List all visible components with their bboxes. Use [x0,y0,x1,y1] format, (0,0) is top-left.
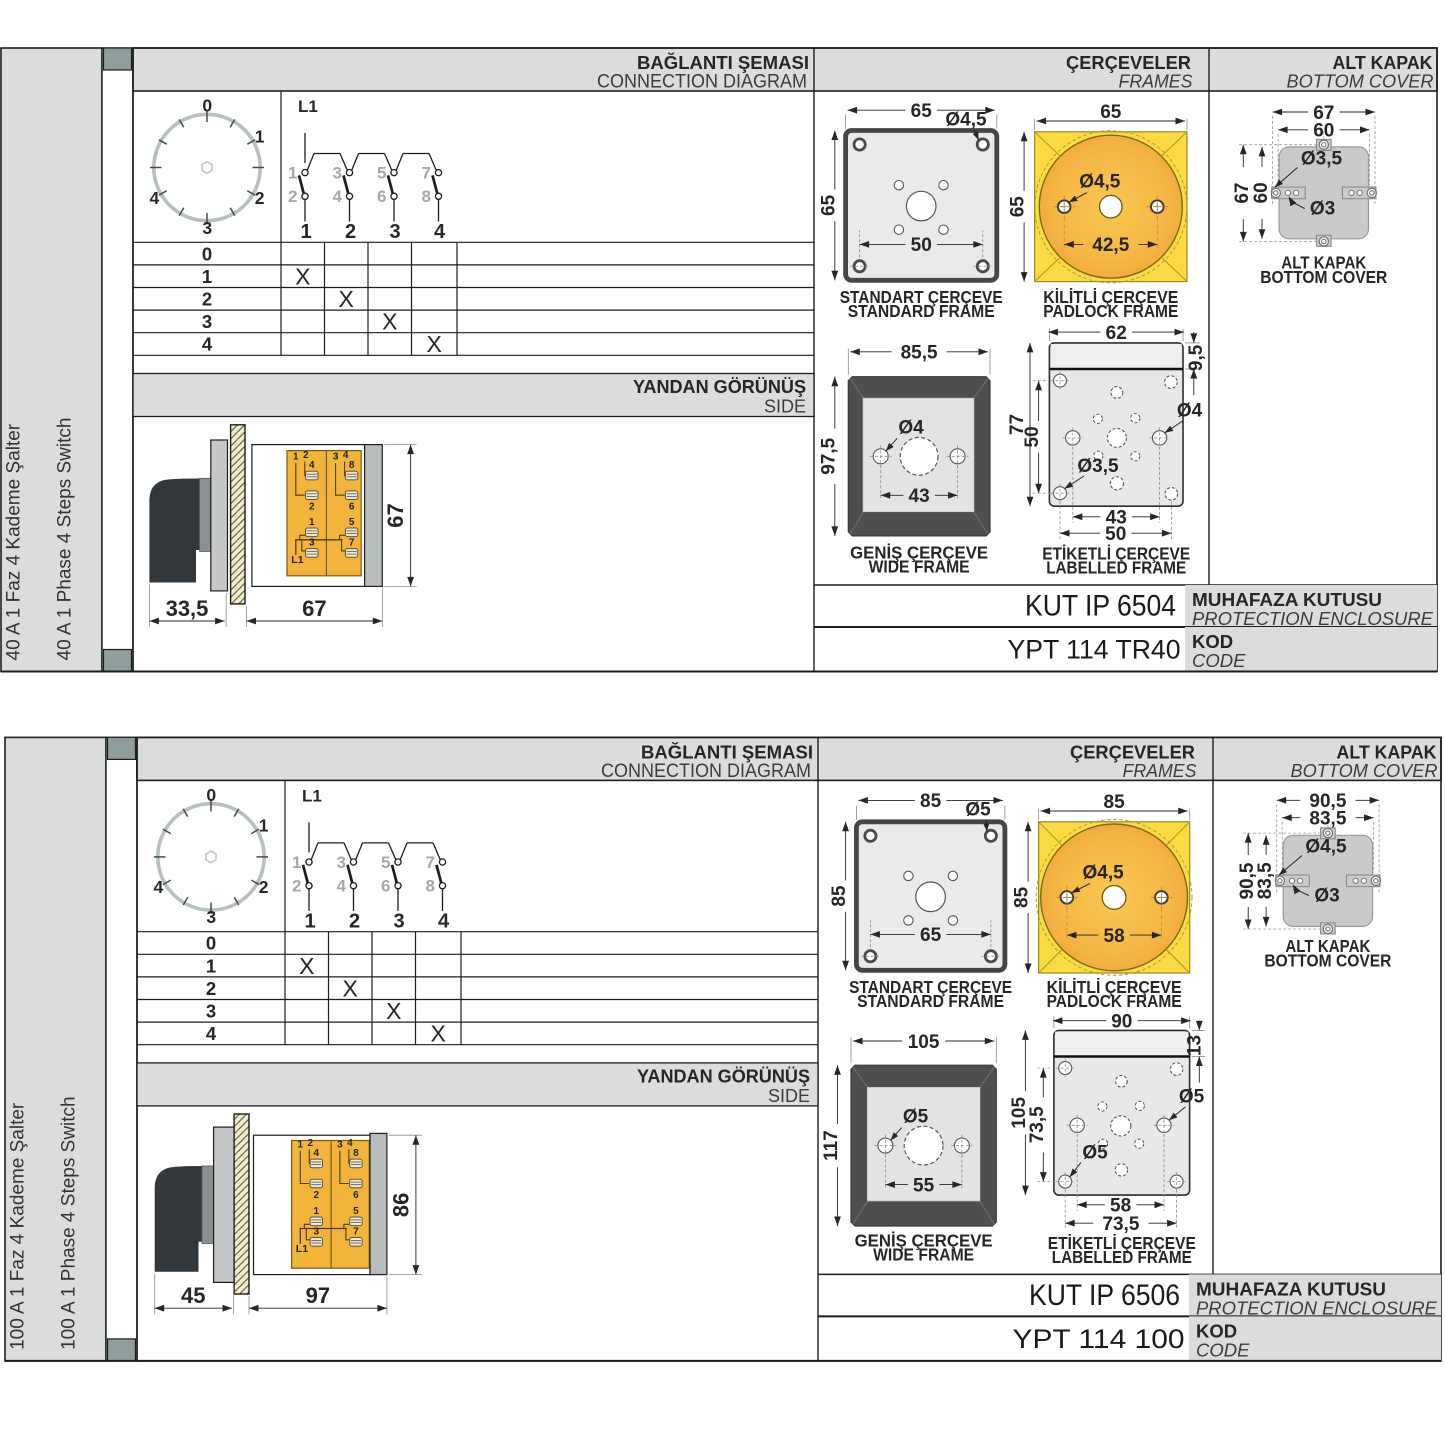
svg-text:8: 8 [422,187,431,206]
svg-text:90: 90 [1111,1012,1132,1033]
svg-text:7: 7 [422,163,431,182]
svg-text:2: 2 [288,187,297,206]
svg-text:83,5: 83,5 [1255,862,1276,899]
svg-text:6: 6 [349,502,355,513]
svg-text:FRAMES: FRAMES [1123,761,1197,781]
svg-text:3: 3 [393,910,404,932]
svg-text:40 A 1 Phase 4 Steps Switch: 40 A 1 Phase 4 Steps Switch [55,418,76,661]
svg-text:65: 65 [920,925,942,946]
svg-text:60: 60 [1251,182,1272,203]
svg-text:STANDARD FRAME: STANDARD FRAME [848,301,995,321]
svg-text:85: 85 [1104,792,1126,813]
svg-text:5: 5 [377,163,386,182]
svg-text:117: 117 [821,1130,842,1161]
svg-text:4: 4 [438,910,450,932]
svg-text:YANDAN GÖRÜNÜŞ: YANDAN GÖRÜNÜŞ [633,377,806,397]
svg-text:8: 8 [426,877,435,896]
svg-text:97,5: 97,5 [818,437,839,474]
svg-text:X: X [382,309,397,335]
svg-text:2: 2 [309,502,315,513]
svg-text:7: 7 [353,1226,359,1237]
svg-text:65: 65 [1008,196,1029,218]
svg-text:L1: L1 [291,554,303,566]
svg-text:BOTTOM COVER: BOTTOM COVER [1260,267,1387,287]
svg-text:Ø4,5: Ø4,5 [1305,837,1347,858]
svg-text:1: 1 [288,163,297,182]
svg-text:1: 1 [298,1139,304,1150]
svg-text:MUHAFAZA KUTUSU: MUHAFAZA KUTUSU [1192,590,1382,610]
svg-text:55: 55 [913,1175,935,1196]
svg-text:62: 62 [1106,323,1127,344]
svg-text:WIDE FRAME: WIDE FRAME [873,1244,974,1264]
svg-text:LABELLED FRAME: LABELLED FRAME [1046,558,1186,578]
svg-text:3: 3 [314,1226,320,1237]
svg-text:3: 3 [333,163,342,182]
svg-text:CONNECTION DIAGRAM: CONNECTION DIAGRAM [601,761,811,782]
svg-text:ÇERÇEVELER: ÇERÇEVELER [1066,53,1191,73]
svg-text:L1: L1 [298,97,318,116]
svg-text:73,5: 73,5 [1027,1106,1048,1143]
svg-text:42,5: 42,5 [1092,235,1129,256]
svg-text:7: 7 [349,537,355,548]
svg-text:YANDAN GÖRÜNÜŞ: YANDAN GÖRÜNÜŞ [637,1066,810,1086]
svg-text:65: 65 [818,194,839,216]
svg-text:BAĞLANTI ŞEMASI: BAĞLANTI ŞEMASI [641,741,813,762]
svg-text:86: 86 [388,1193,413,1217]
svg-text:CONNECTION DIAGRAM: CONNECTION DIAGRAM [597,72,807,93]
svg-text:X: X [339,286,354,312]
svg-text:67: 67 [383,503,408,527]
svg-text:STANDARD FRAME: STANDARD FRAME [857,991,1004,1011]
svg-text:97: 97 [306,1283,330,1308]
svg-text:65: 65 [911,101,933,122]
svg-text:KUT IP 6506: KUT IP 6506 [1029,1279,1180,1312]
svg-text:85,5: 85,5 [901,343,938,364]
svg-text:1: 1 [304,910,315,932]
svg-text:85: 85 [829,885,850,907]
svg-text:45: 45 [181,1283,205,1308]
svg-text:2: 2 [292,877,301,896]
svg-text:4: 4 [154,877,164,897]
svg-text:2: 2 [345,221,356,243]
svg-text:40 A 1 Faz 4 Kademe Şalter: 40 A 1 Faz 4 Kademe Şalter [4,423,25,660]
svg-text:4: 4 [150,188,160,208]
svg-text:5: 5 [349,517,355,528]
svg-text:43: 43 [909,486,930,507]
svg-text:Ø3: Ø3 [1314,886,1339,907]
svg-text:Ø3: Ø3 [1310,199,1335,220]
svg-text:3: 3 [202,218,212,238]
svg-text:13: 13 [1184,1035,1205,1056]
svg-text:PROTECTION ENCLOSURE: PROTECTION ENCLOSURE [1192,608,1434,629]
svg-text:100 A 1 Phase 4 Steps Switch: 100 A 1 Phase 4 Steps Switch [59,1096,80,1350]
svg-text:73,5: 73,5 [1102,1214,1139,1235]
svg-text:50: 50 [911,235,932,256]
svg-text:L1: L1 [302,786,322,805]
svg-text:65: 65 [1100,102,1122,123]
svg-text:X: X [295,263,310,289]
svg-text:Ø5: Ø5 [965,800,991,821]
svg-text:1: 1 [314,1206,320,1217]
svg-text:FRAMES: FRAMES [1119,72,1193,92]
svg-text:0: 0 [206,933,216,954]
svg-text:ÇERÇEVELER: ÇERÇEVELER [1070,742,1195,762]
svg-text:2: 2 [202,289,212,310]
svg-text:8: 8 [349,460,355,471]
svg-text:CODE: CODE [1192,650,1246,671]
svg-text:5: 5 [353,1206,359,1217]
svg-text:SIDE: SIDE [768,1085,810,1106]
svg-text:1: 1 [300,221,311,243]
svg-text:X: X [386,998,401,1024]
svg-text:4: 4 [337,877,347,896]
svg-text:4: 4 [314,1148,320,1159]
svg-text:8: 8 [353,1148,359,1159]
svg-text:0: 0 [202,243,212,264]
svg-text:58: 58 [1104,926,1125,947]
svg-text:3: 3 [206,907,216,927]
svg-text:SIDE: SIDE [764,396,806,417]
svg-text:Ø5: Ø5 [903,1107,929,1128]
svg-text:1: 1 [259,816,269,836]
svg-text:BAĞLANTI ŞEMASI: BAĞLANTI ŞEMASI [637,52,809,73]
svg-text:105: 105 [908,1032,940,1053]
svg-text:1: 1 [206,955,216,976]
svg-text:L1: L1 [296,1243,308,1255]
svg-text:2: 2 [314,1190,320,1201]
svg-text:6: 6 [377,187,386,206]
svg-text:ALT KAPAK: ALT KAPAK [1333,53,1433,73]
svg-text:4: 4 [333,187,343,206]
svg-text:3: 3 [337,853,346,872]
svg-text:MUHAFAZA KUTUSU: MUHAFAZA KUTUSU [1196,1279,1386,1299]
svg-text:5: 5 [381,853,390,872]
svg-text:3: 3 [389,221,400,243]
svg-text:1: 1 [255,126,265,146]
svg-text:50: 50 [1105,524,1126,545]
svg-text:KOD: KOD [1196,1320,1237,1341]
svg-text:9,5: 9,5 [1186,344,1207,371]
svg-text:4: 4 [309,460,315,471]
svg-text:67: 67 [302,596,326,621]
svg-text:2: 2 [259,877,269,897]
svg-text:Ø4: Ø4 [1177,401,1203,422]
svg-text:BOTTOM COVER: BOTTOM COVER [1287,72,1434,92]
svg-text:3: 3 [337,1139,343,1150]
svg-text:2: 2 [255,188,265,208]
svg-text:KOD: KOD [1192,631,1233,652]
svg-text:85: 85 [920,791,942,812]
svg-text:85: 85 [1012,886,1033,908]
svg-text:60: 60 [1313,121,1334,142]
svg-text:33,5: 33,5 [166,596,209,621]
svg-text:4: 4 [202,334,213,355]
svg-text:4: 4 [434,221,446,243]
svg-text:3: 3 [206,1001,216,1022]
svg-text:4: 4 [206,1023,217,1044]
svg-text:1: 1 [202,266,212,287]
svg-text:83,5: 83,5 [1309,809,1346,830]
svg-text:LABELLED FRAME: LABELLED FRAME [1052,1247,1192,1267]
svg-text:Ø5: Ø5 [1082,1142,1108,1163]
svg-text:PROTECTION ENCLOSURE: PROTECTION ENCLOSURE [1196,1297,1438,1318]
svg-text:BOTTOM COVER: BOTTOM COVER [1264,951,1391,971]
svg-text:Ø3,5: Ø3,5 [1077,456,1119,477]
svg-text:CODE: CODE [1196,1339,1250,1360]
svg-text:3: 3 [309,537,315,548]
svg-text:Ø4,5: Ø4,5 [945,110,987,131]
svg-text:3: 3 [202,311,212,332]
svg-text:KUT IP 6504: KUT IP 6504 [1025,590,1176,623]
svg-text:100 A 1 Faz 4 Kademe Şalter: 100 A 1 Faz 4 Kademe Şalter [8,1102,29,1350]
svg-text:BOTTOM COVER: BOTTOM COVER [1291,761,1438,781]
svg-text:X: X [299,953,314,979]
svg-text:7: 7 [426,853,435,872]
svg-text:6: 6 [353,1190,359,1201]
svg-text:2: 2 [206,978,216,999]
svg-text:X: X [343,975,358,1001]
svg-text:0: 0 [206,785,216,805]
svg-text:6: 6 [381,877,390,896]
svg-text:ALT KAPAK: ALT KAPAK [1337,742,1437,762]
svg-text:1: 1 [309,517,315,528]
svg-text:PADLOCK FRAME: PADLOCK FRAME [1047,991,1182,1011]
svg-text:YPT 114 100: YPT 114 100 [1013,1324,1185,1354]
svg-text:Ø3,5: Ø3,5 [1301,149,1343,170]
svg-text:X: X [427,331,442,357]
svg-text:X: X [431,1021,446,1047]
svg-text:0: 0 [202,96,212,116]
svg-text:1: 1 [292,853,301,872]
svg-text:2: 2 [349,910,360,932]
svg-text:YPT 114 TR40: YPT 114 TR40 [1008,635,1181,665]
svg-text:WIDE FRAME: WIDE FRAME [869,557,970,577]
svg-text:Ø4: Ø4 [898,417,924,438]
svg-text:Ø4,5: Ø4,5 [1079,172,1121,193]
svg-text:Ø5: Ø5 [1179,1087,1205,1108]
svg-text:50: 50 [1022,426,1043,447]
svg-text:1: 1 [293,452,299,463]
svg-text:PADLOCK FRAME: PADLOCK FRAME [1043,301,1178,321]
svg-text:Ø4,5: Ø4,5 [1082,862,1124,883]
svg-text:3: 3 [333,452,339,463]
